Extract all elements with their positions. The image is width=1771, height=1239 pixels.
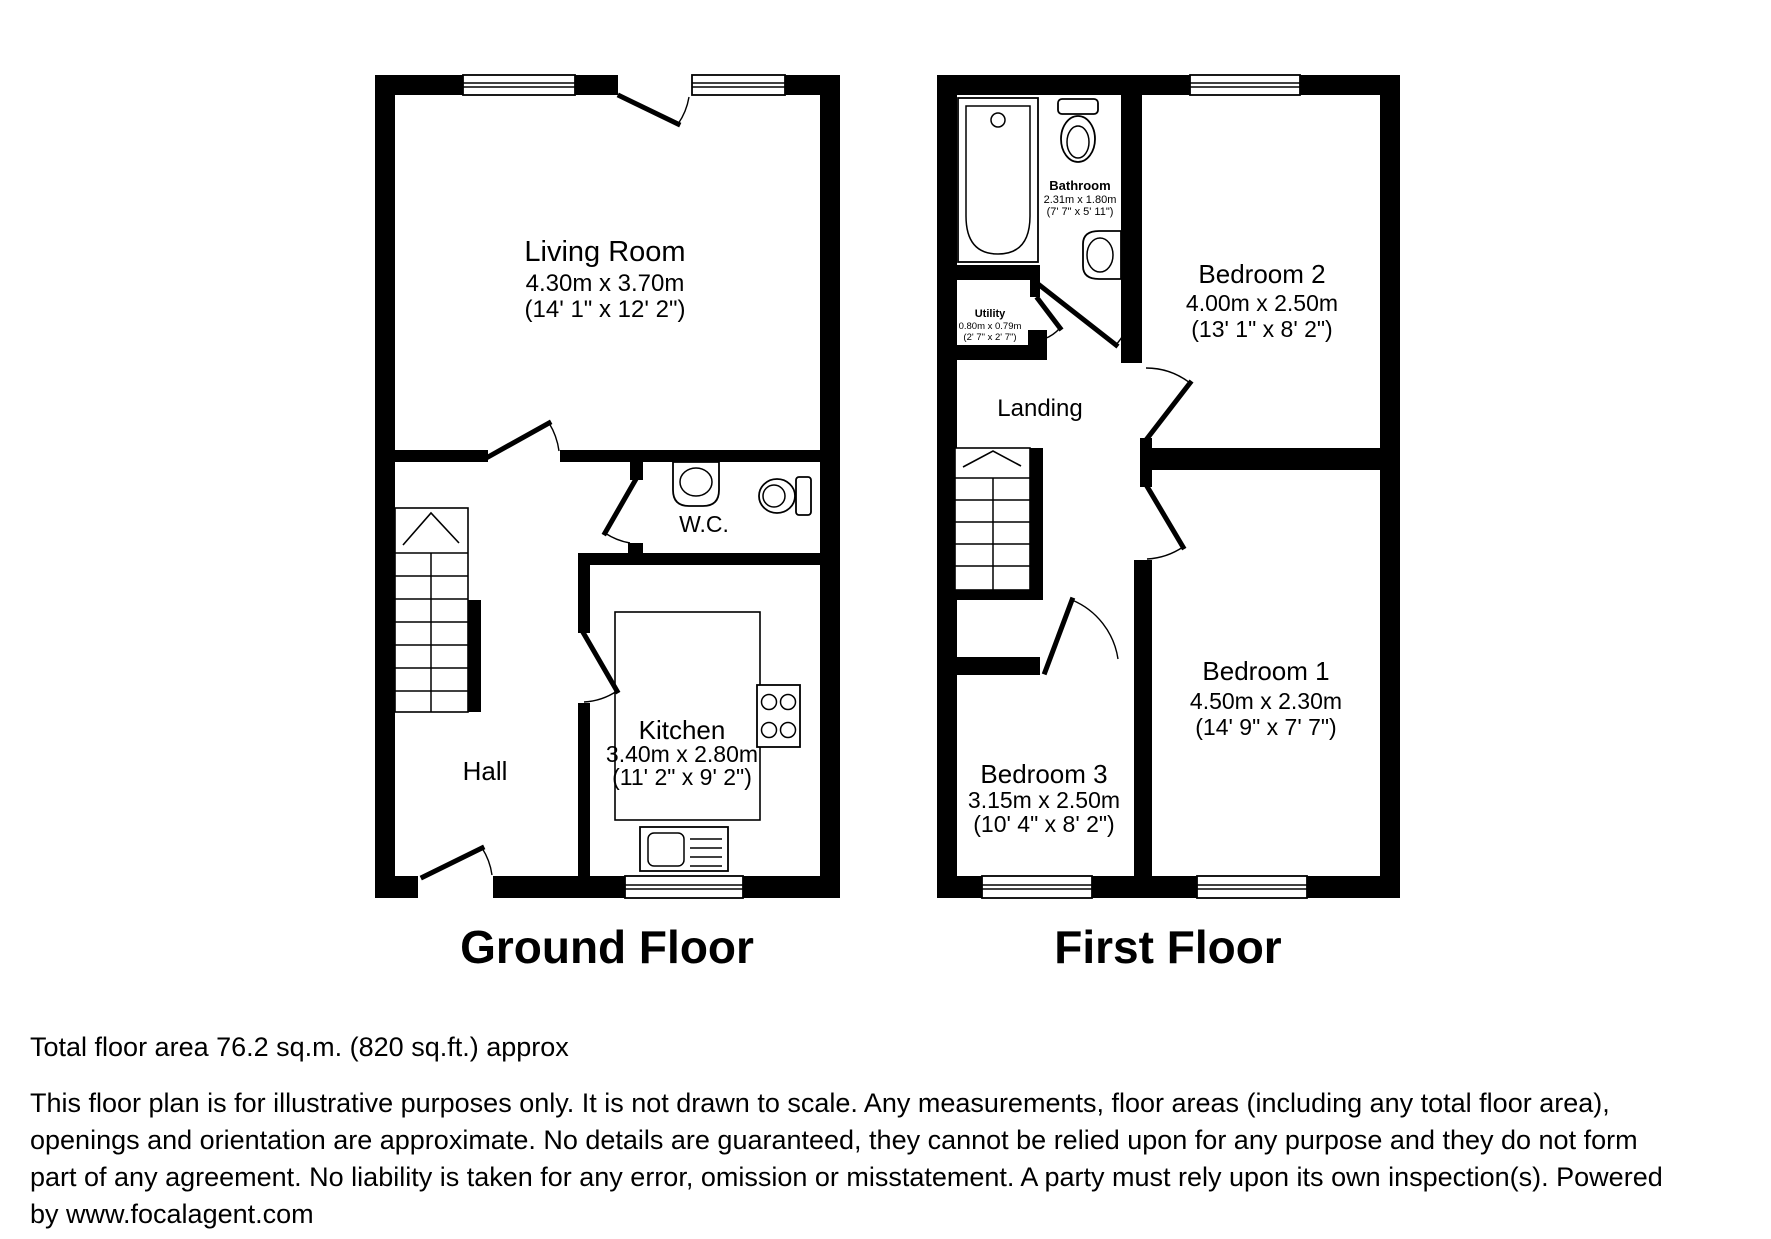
room-name: Hall [463, 756, 508, 786]
bedroom1-door [1147, 488, 1183, 559]
room-name: Living Room [524, 236, 685, 268]
ground-floor-title: Ground Floor [460, 921, 754, 973]
bedroom1-window [1197, 876, 1307, 898]
room-name: Bathroom [1049, 178, 1110, 193]
bedroom1-label: Bedroom 1 4.50m x 2.30m (14' 9" x 7' 7") [1190, 656, 1342, 740]
bedroom2-door [1146, 368, 1190, 440]
room-dim-imperial: (11' 2" x 9' 2") [612, 764, 752, 790]
room-dim-imperial: (7' 7" x 5' 11") [1047, 206, 1114, 218]
room-dim-imperial: (14' 1" x 12' 2") [525, 296, 686, 323]
room-dim-metric: 2.31m x 1.80m [1044, 194, 1117, 206]
room-dim-imperial: (13' 1" x 8' 2") [1191, 316, 1332, 342]
garden-door [620, 96, 689, 124]
room-dim-metric: 0.80m x 0.79m [959, 321, 1022, 332]
staircase-ground [395, 508, 468, 712]
room-name: W.C. [679, 511, 729, 537]
hall-label: Hall [463, 756, 508, 786]
room-dim-metric: 3.15m x 2.50m [968, 787, 1120, 813]
kitchen-sink-icon [640, 827, 728, 871]
kitchen-window [625, 876, 743, 898]
wc-door [605, 479, 636, 543]
room-dim-imperial: (10' 4" x 8' 2") [973, 811, 1114, 837]
front-door [423, 848, 492, 877]
bedroom2-label: Bedroom 2 4.00m x 2.50m (13' 1" x 8' 2") [1186, 259, 1338, 342]
bathtub-icon [958, 98, 1038, 262]
staircase-first [955, 448, 1030, 590]
room-name: Bedroom 2 [1198, 259, 1325, 289]
living-room-window [463, 75, 575, 95]
bathroom-toilet-icon [1058, 99, 1098, 162]
floorplan-canvas: Living Room 4.30m x 3.70m (14' 1" x 12' … [0, 0, 1771, 1239]
bedroom3-door [1045, 600, 1118, 672]
room-dim-imperial: (14' 9" x 7' 7") [1195, 714, 1336, 740]
floorplan-page: Living Room 4.30m x 3.70m (14' 1" x 12' … [0, 0, 1771, 1239]
bedroom3-window [982, 876, 1092, 898]
disclaimer-line: by www.focalagent.com [30, 1199, 314, 1229]
room-dim-imperial: (2' 7" x 2' 7") [963, 332, 1016, 343]
disclaimer: This floor plan is for illustrative purp… [30, 1088, 1663, 1229]
kitchen-label: Kitchen 3.40m x 2.80m (11' 2" x 9' 2") [606, 715, 758, 790]
room-dim-metric: 4.50m x 2.30m [1190, 688, 1342, 714]
room-name: Bedroom 3 [980, 759, 1107, 789]
bedroom3-label: Bedroom 3 3.15m x 2.50m (10' 4" x 8' 2") [968, 759, 1120, 837]
room-dim-metric: 4.00m x 2.50m [1186, 290, 1338, 316]
disclaimer-line: This floor plan is for illustrative purp… [30, 1088, 1610, 1118]
total-floor-area: Total floor area 76.2 sq.m. (820 sq.ft.)… [30, 1032, 569, 1062]
wc-label: W.C. [679, 511, 729, 537]
bathroom-label: Bathroom 2.31m x 1.80m (7' 7" x 5' 11") [1044, 178, 1117, 218]
hob-icon [757, 685, 800, 747]
living-room-door [488, 423, 559, 457]
living-room-window-2 [692, 75, 785, 95]
room-name: Bedroom 1 [1202, 656, 1329, 686]
ground-floor-plan: Living Room 4.30m x 3.70m (14' 1" x 12' … [375, 75, 840, 898]
utility-label: Utility 0.80m x 0.79m (2' 7" x 2' 7") [959, 308, 1022, 343]
first-floor-plan: Bathroom 2.31m x 1.80m (7' 7" x 5' 11") … [937, 75, 1400, 898]
first-floor-title: First Floor [1054, 921, 1282, 973]
disclaimer-line: part of any agreement. No liability is t… [30, 1162, 1663, 1192]
room-name: Utility [975, 308, 1006, 320]
wc-toilet-icon [759, 477, 811, 515]
kitchen-door [584, 634, 617, 702]
bathroom-basin-icon [1083, 231, 1121, 279]
bedroom2-window [1190, 75, 1300, 95]
landing-label: Landing [997, 395, 1082, 422]
wc-basin-icon [673, 462, 719, 506]
disclaimer-line: openings and orientation are approximate… [30, 1125, 1638, 1155]
living-room-label: Living Room 4.30m x 3.70m (14' 1" x 12' … [524, 236, 685, 323]
room-name: Landing [997, 395, 1082, 422]
room-dim-metric: 4.30m x 3.70m [526, 270, 685, 297]
